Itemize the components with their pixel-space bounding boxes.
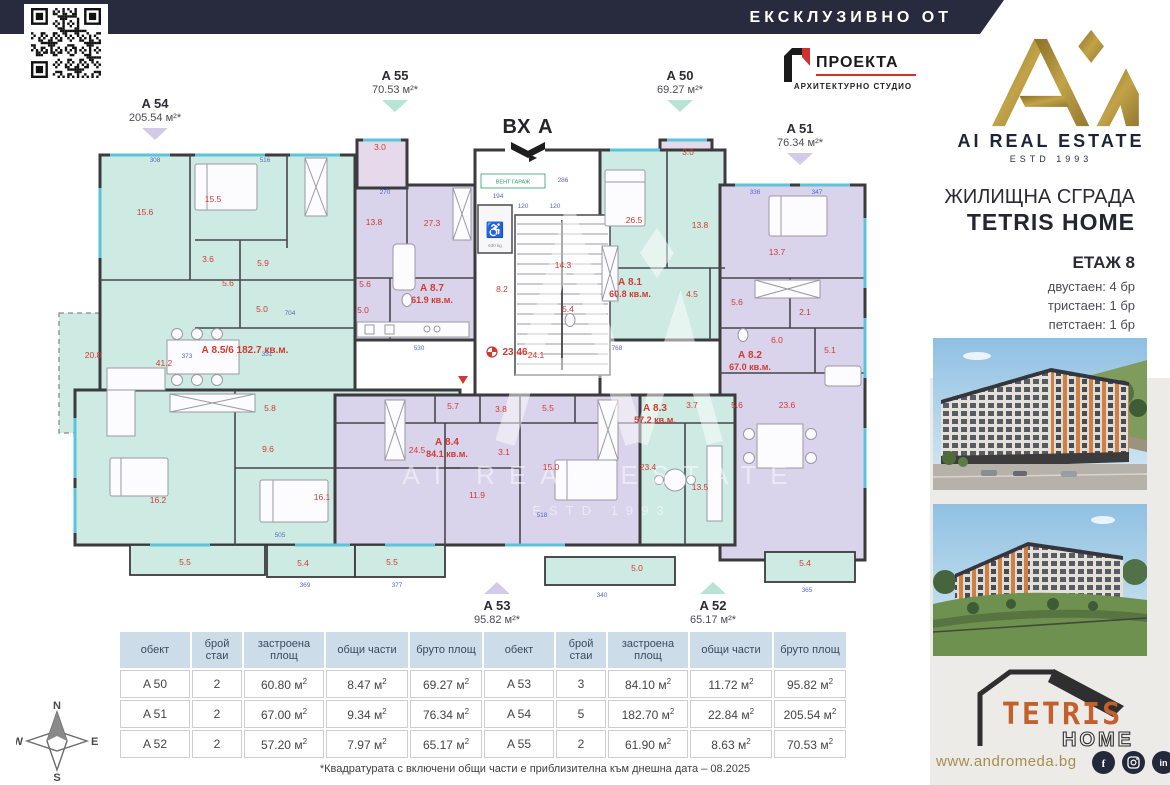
unit-area-label: 61.9 кв.м. (411, 295, 453, 305)
table-cell: A 55 (484, 730, 554, 758)
room-area-label: 13.5 (692, 482, 709, 492)
room-area-label: 5.0 (256, 304, 268, 314)
architect-logo-icon (782, 46, 812, 82)
table-header-cell: застроена площ (244, 632, 324, 668)
callout-area: 76.34 м²* (745, 137, 855, 149)
apartment-callout-a54: A 54205.54 м²* (100, 96, 210, 140)
callout-pointer-icon (484, 582, 510, 594)
table-cell: 7.97 м2 (326, 730, 408, 758)
table-row: A 50260.80 м28.47 м269.27 м2 (120, 670, 482, 698)
table-cell: A 53 (484, 670, 554, 698)
table-cell: 2 (192, 700, 242, 728)
apartment-callout-a50: A 5069.27 м²* (625, 68, 735, 112)
survey-mark-icon (487, 347, 497, 357)
tetris-logo-text: TETRIS (1002, 697, 1122, 732)
table-cell: 182.70 м2 (608, 700, 688, 728)
callout-area: 65.17 м²* (658, 614, 768, 626)
callout-pointer-icon (382, 100, 408, 112)
table-header-cell: обект (484, 632, 554, 668)
table-header-cell: общи части (690, 632, 772, 668)
room-area-label: 24.5 (409, 445, 426, 455)
room-area-label: 13.8 (692, 220, 709, 230)
brand-estd: ESTD 1993 (938, 154, 1164, 164)
apartment-callout-a52: A 5265.17 м²* (658, 582, 768, 626)
entrance-label: ВХ А (492, 116, 564, 139)
table-cell: 3 (556, 670, 606, 698)
entrance-arrow-icon (511, 142, 545, 158)
table-header-cell: брой стаи (556, 632, 606, 668)
building-render-photo-1 (933, 338, 1147, 490)
unit-label: А 8.3 (643, 403, 667, 414)
room-area-label: 15.5 (205, 194, 222, 204)
dimension-label: 340 (597, 592, 608, 599)
website-link[interactable]: www.andromeda.bg (936, 753, 1096, 770)
table-cell: A 51 (120, 700, 190, 728)
dimension-label: 308 (150, 157, 161, 164)
compass-rose: N W E S (16, 700, 98, 782)
table-cell: 8.63 м2 (690, 730, 772, 758)
unit-label: А 8.2 (738, 350, 762, 361)
dimension-label: 286 (558, 177, 569, 184)
table-header-cell: бруто площ (774, 632, 846, 668)
facebook-icon[interactable]: f (1092, 751, 1115, 774)
room-area-label: 5.4 (297, 558, 309, 568)
table-row: A 55261.90 м28.63 м270.53 м2 (484, 730, 846, 758)
room-area-label: 3.7 (686, 400, 698, 410)
unit-area-label: 60.8 кв.м. (609, 289, 651, 299)
room-area-label: 5.5 (542, 403, 554, 413)
table-cell: 22.84 м2 (690, 700, 772, 728)
room-area-label: 24.1 (528, 350, 545, 360)
dimension-label: 120 (550, 203, 561, 210)
room-area-label: 16.2 (150, 495, 167, 505)
unit-label: А 8.5/6 182.7 кв.м. (202, 345, 289, 356)
callout-area: 205.54 м²* (100, 112, 210, 124)
architect-logo-underline (816, 74, 916, 76)
table-row: A 53384.10 м211.72 м295.82 м2 (484, 670, 846, 698)
table-cell: 84.10 м2 (608, 670, 688, 698)
table-header-cell: общи части (326, 632, 408, 668)
room-area-label: 8.2 (496, 284, 508, 294)
unit-mix-list: двустаен: 4 бртристаен: 1 брпетстаен: 1 … (1048, 277, 1135, 334)
svg-text:f: f (1102, 758, 1106, 769)
callout-area: 95.82 м²* (442, 614, 552, 626)
brochure-page: ЕКСКЛУЗИВНО ОТ ПРОЕКТА АРХИТЕКТУРНО СТУД… (0, 0, 1170, 785)
table-cell: 2 (556, 730, 606, 758)
table-header-cell: бруто площ (410, 632, 482, 668)
svg-text:AI REAL ESTATE: AI REAL ESTATE (402, 460, 801, 490)
building-type-label: ЖИЛИЩНА СГРАДА (944, 186, 1135, 209)
room-area-label: 5.7 (447, 401, 459, 411)
dimension-label: 516 (260, 157, 271, 164)
table-cell: 11.72 м2 (690, 670, 772, 698)
room-area-label: 15.0 (543, 462, 560, 472)
room-area-label: 26.5 (626, 215, 643, 225)
room-area-label: 5.5 (386, 557, 398, 567)
room-area-label: 3.1 (498, 447, 510, 457)
compass-n: N (53, 700, 61, 712)
room-area-label: 5.6 (731, 400, 743, 410)
callout-area: 69.27 м²* (625, 84, 735, 96)
floor-unit-count: тристаен: 1 бр (1048, 296, 1135, 315)
room-area-label: 23.4 (640, 462, 657, 472)
instagram-icon[interactable] (1122, 751, 1145, 774)
floor-label: ЕТАЖ 8 (1073, 253, 1135, 273)
room-area-label: 3.0 (682, 147, 694, 157)
table-header-cell: обект (120, 632, 190, 668)
callout-id: A 54 (100, 96, 210, 111)
callout-pointer-icon (667, 100, 693, 112)
table-cell: 60.80 м2 (244, 670, 324, 698)
table-row: A 52257.20 м27.97 м265.17 м2 (120, 730, 482, 758)
table-cell: 69.27 м2 (410, 670, 482, 698)
dimension-label: 347 (812, 189, 823, 196)
room-area-label: 5.4 (562, 304, 574, 314)
tetris-home-logo: TETRIS HOME (958, 660, 1170, 752)
floor-unit-count: двустаен: 4 бр (1048, 277, 1135, 296)
table-cell: 9.34 м2 (326, 700, 408, 728)
callout-area: 70.53 м²* (340, 84, 450, 96)
floor-plan: ♿ 630 kg ВЕНТ ГАРАЖ (55, 128, 935, 628)
table-cell: A 54 (484, 700, 554, 728)
home-logo-text: HOME (1062, 729, 1134, 751)
table-header-cell: застроена площ (608, 632, 688, 668)
unit-label: А 8.7 (420, 283, 444, 294)
table-cell: 67.00 м2 (244, 700, 324, 728)
room-area-label: 3.8 (495, 404, 507, 414)
vent-label: ВЕНТ ГАРАЖ (496, 180, 531, 186)
room-area-label: 14.3 (555, 260, 572, 270)
room-area-label: 5.4 (799, 558, 811, 568)
table-cell: 8.47 м2 (326, 670, 408, 698)
dimension-label: 373 (182, 353, 193, 360)
room-area-label: 5.8 (264, 403, 276, 413)
dimension-label: 270 (380, 189, 391, 196)
svg-text:ESTD 1993: ESTD 1993 (532, 503, 671, 518)
unit-label: А 8.1 (618, 277, 642, 288)
apartment-callout-a53: A 5395.82 м²* (442, 582, 552, 626)
exclusive-banner-label: ЕКСКЛУЗИВНО ОТ (0, 0, 952, 34)
table-cell: 61.90 м2 (608, 730, 688, 758)
table-row: A 51267.00 м29.34 м276.34 м2 (120, 700, 482, 728)
architect-name: ПРОЕКТА (816, 54, 899, 72)
room-area-label: 4.5 (686, 289, 698, 299)
brand-name: AI REAL ESTATE (938, 131, 1164, 152)
dimension-label: 365 (802, 587, 813, 594)
table-cell: 95.82 м2 (774, 670, 846, 698)
table-cell: 2 (192, 670, 242, 698)
table-cell: A 52 (120, 730, 190, 758)
qr-code-image (28, 8, 104, 78)
room-area-label: 6.0 (771, 335, 783, 345)
lift-capacity-label: 630 kg (488, 243, 502, 248)
callout-pointer-icon (787, 153, 813, 165)
table-cell: 205.54 м2 (774, 700, 846, 728)
callout-id: A 51 (745, 121, 855, 136)
room-area-label: 5.0 (631, 563, 643, 573)
floor-plan-drawing: ♿ 630 kg ВЕНТ ГАРАЖ (55, 128, 935, 628)
compass-w: W (16, 736, 24, 748)
callout-id: A 50 (625, 68, 735, 83)
compass-s: S (53, 772, 60, 782)
table-cell: 2 (192, 730, 242, 758)
room-area-label: 13.7 (769, 247, 786, 257)
room-area-label: 2.1 (799, 307, 811, 317)
room-area-label: 5.6 (222, 278, 234, 288)
compass-e: E (91, 736, 98, 748)
room-area-label: 20.8 (85, 350, 102, 360)
dimension-label: 768 (612, 345, 623, 352)
room-area-label: 15.6 (137, 207, 154, 217)
area-table-right: обектброй стаизастроена площобщи частибр… (482, 630, 848, 760)
apartment-callout-a51: A 5176.34 м²* (745, 121, 855, 165)
linkedin-icon[interactable]: in (1152, 751, 1170, 774)
callout-id: A 52 (658, 598, 768, 613)
dimension-label: 505 (275, 532, 286, 539)
table-cell: 76.34 м2 (410, 700, 482, 728)
room-area-label: 23.6 (779, 400, 796, 410)
room-area-label: 11.9 (469, 490, 485, 500)
room-area-label: 3.0 (374, 142, 386, 152)
room-area-label: 5.6 (359, 279, 371, 289)
dimension-label: 331 (262, 351, 273, 358)
room-area-label: 9.6 (262, 444, 274, 454)
unit-area-label: 67.0 кв.м. (729, 362, 771, 372)
dimension-label: 377 (392, 582, 403, 589)
table-cell: 5 (556, 700, 606, 728)
dimension-label: 530 (414, 345, 425, 352)
dimension-label: 194 (493, 193, 504, 200)
room-area-label: 16.1 (314, 492, 331, 502)
floor-unit-count: петстаен: 1 бр (1048, 315, 1135, 334)
unit-area-label: 84.1 кв.м. (426, 449, 468, 459)
dimension-label: 336 (750, 189, 761, 196)
apartment-callout-a55: A 5570.53 м²* (340, 68, 450, 112)
table-cell: 70.53 м2 (774, 730, 846, 758)
room-area-label: 5.9 (257, 258, 269, 268)
room-area-label: 41.2 (156, 358, 173, 368)
total-dimension-label: 23.46 (502, 347, 527, 358)
building-render-photo-2 (933, 504, 1147, 656)
callout-pointer-icon (700, 582, 726, 594)
room-area-label: 5.0 (357, 305, 369, 315)
architect-logo: ПРОЕКТА АРХИТЕКТУРНО СТУДИО (782, 46, 924, 102)
table-header-cell: брой стаи (192, 632, 242, 668)
table-cell: A 50 (120, 670, 190, 698)
ai-real-estate-logo-icon (992, 28, 1148, 128)
table-row: A 545182.70 м222.84 м2205.54 м2 (484, 700, 846, 728)
callout-id: A 55 (340, 68, 450, 83)
architect-subtitle: АРХИТЕКТУРНО СТУДИО (782, 82, 924, 91)
svg-text:in: in (1160, 758, 1168, 768)
room-area-label: 13.8 (366, 217, 383, 227)
dimension-label: 704 (285, 310, 296, 317)
dimension-label: 518 (537, 512, 548, 519)
room-area-label: 27.3 (424, 218, 441, 228)
building-name: TETRIS HOME (967, 209, 1135, 236)
dimension-label: 120 (518, 203, 529, 210)
unit-label: А 8.4 (435, 437, 459, 448)
table-cell: 57.20 м2 (244, 730, 324, 758)
callout-id: A 53 (442, 598, 552, 613)
social-icons: f in (1092, 751, 1170, 774)
room-area-label: 5.1 (824, 345, 836, 355)
room-area-label: 5.6 (731, 297, 743, 307)
area-table-left: обектброй стаизастроена площобщи частибр… (118, 630, 484, 760)
footnote: *Квадратурата с включени общи части е пр… (160, 763, 910, 775)
room-area-label: 5.5 (179, 557, 191, 567)
callout-pointer-icon (142, 128, 168, 140)
room-area-label: 3.6 (202, 254, 214, 264)
entrance-marker: ВХ А (492, 116, 564, 158)
wheelchair-icon: ♿ (486, 221, 505, 239)
table-cell: 65.17 м2 (410, 730, 482, 758)
qr-code (24, 4, 108, 82)
dimension-label: 369 (300, 582, 311, 589)
unit-area-label: 57.2 кв.м. (634, 415, 676, 425)
